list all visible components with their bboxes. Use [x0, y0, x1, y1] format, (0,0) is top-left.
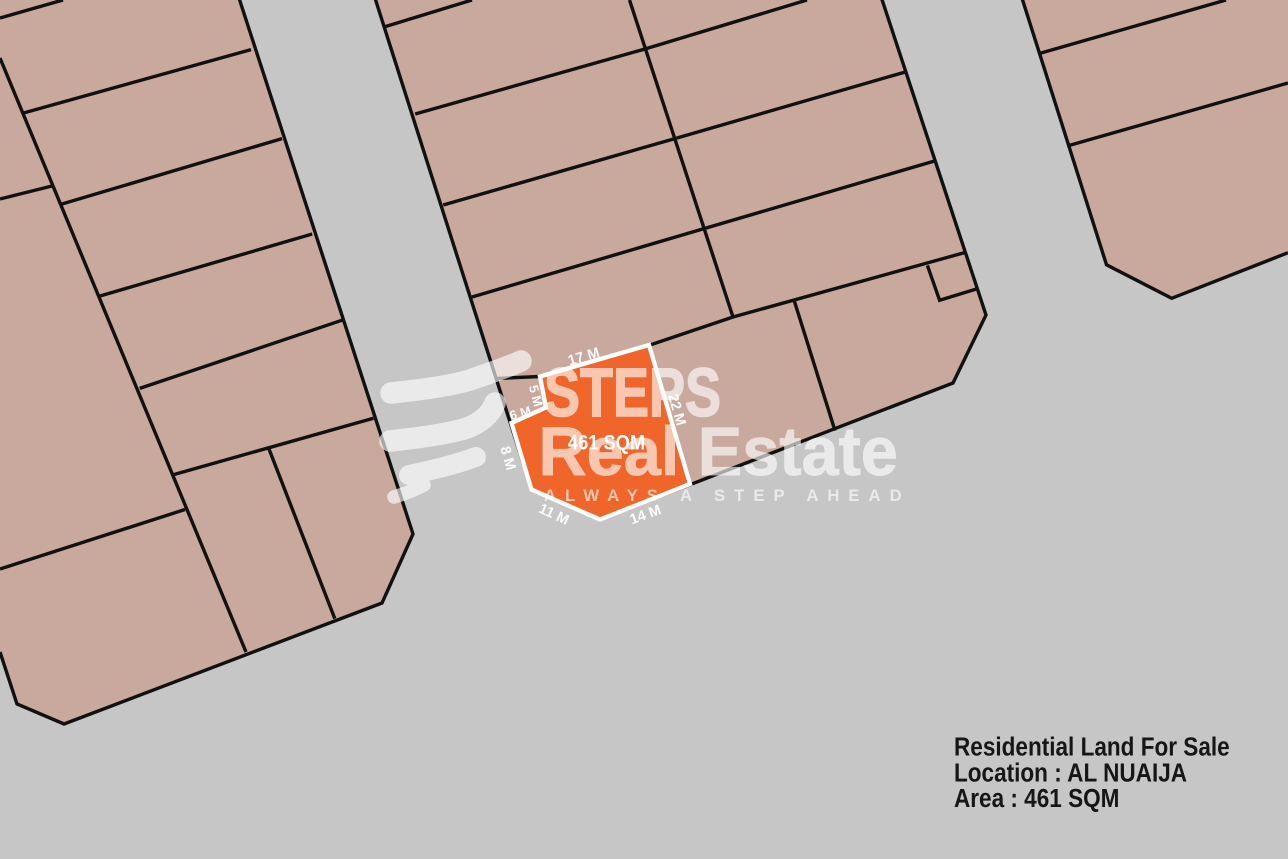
- svg-text:461 SQM: 461 SQM: [568, 431, 645, 455]
- svg-text:Area : 461 SQM: Area : 461 SQM: [954, 785, 1119, 814]
- svg-text:Location : AL NUAIJA: Location : AL NUAIJA: [954, 759, 1187, 788]
- svg-text:Residential Land For Sale: Residential Land For Sale: [954, 733, 1230, 762]
- svg-text:ALWAYS A STEP AHEAD: ALWAYS A STEP AHEAD: [544, 486, 911, 505]
